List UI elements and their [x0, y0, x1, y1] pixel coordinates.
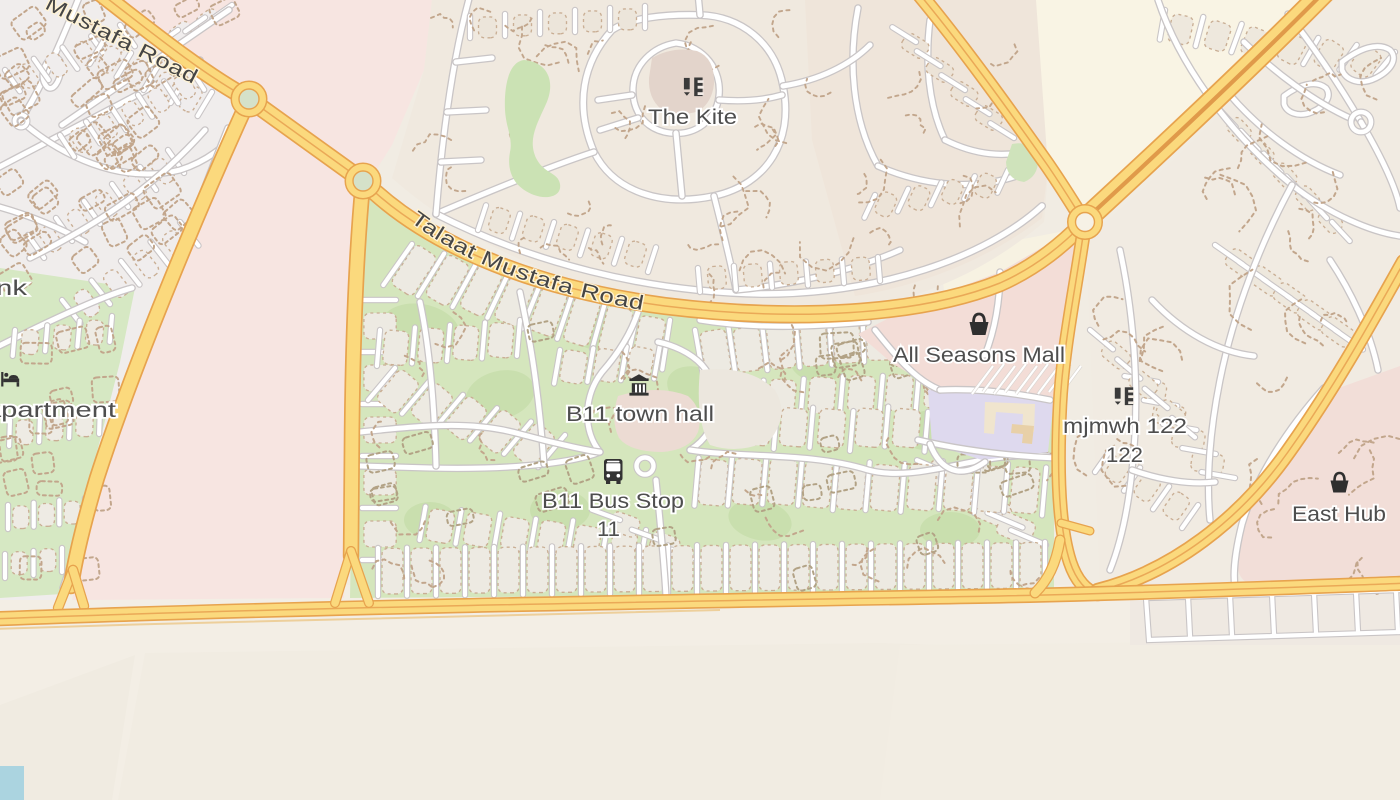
svg-text:B11 Bus Stop: B11 Bus Stop: [542, 490, 684, 513]
svg-text:nk: nk: [0, 277, 28, 300]
svg-text:East Hub: East Hub: [1292, 503, 1386, 526]
svg-text:11: 11: [597, 518, 620, 541]
svg-text:apartment: apartment: [0, 399, 116, 422]
svg-text:B11 town hall: B11 town hall: [566, 403, 714, 426]
svg-text:mjmwh 122: mjmwh 122: [1063, 415, 1187, 438]
svg-text:All Seasons Mall: All Seasons Mall: [893, 344, 1065, 367]
svg-text:122: 122: [1106, 444, 1143, 467]
svg-text:The Kite: The Kite: [648, 106, 737, 129]
